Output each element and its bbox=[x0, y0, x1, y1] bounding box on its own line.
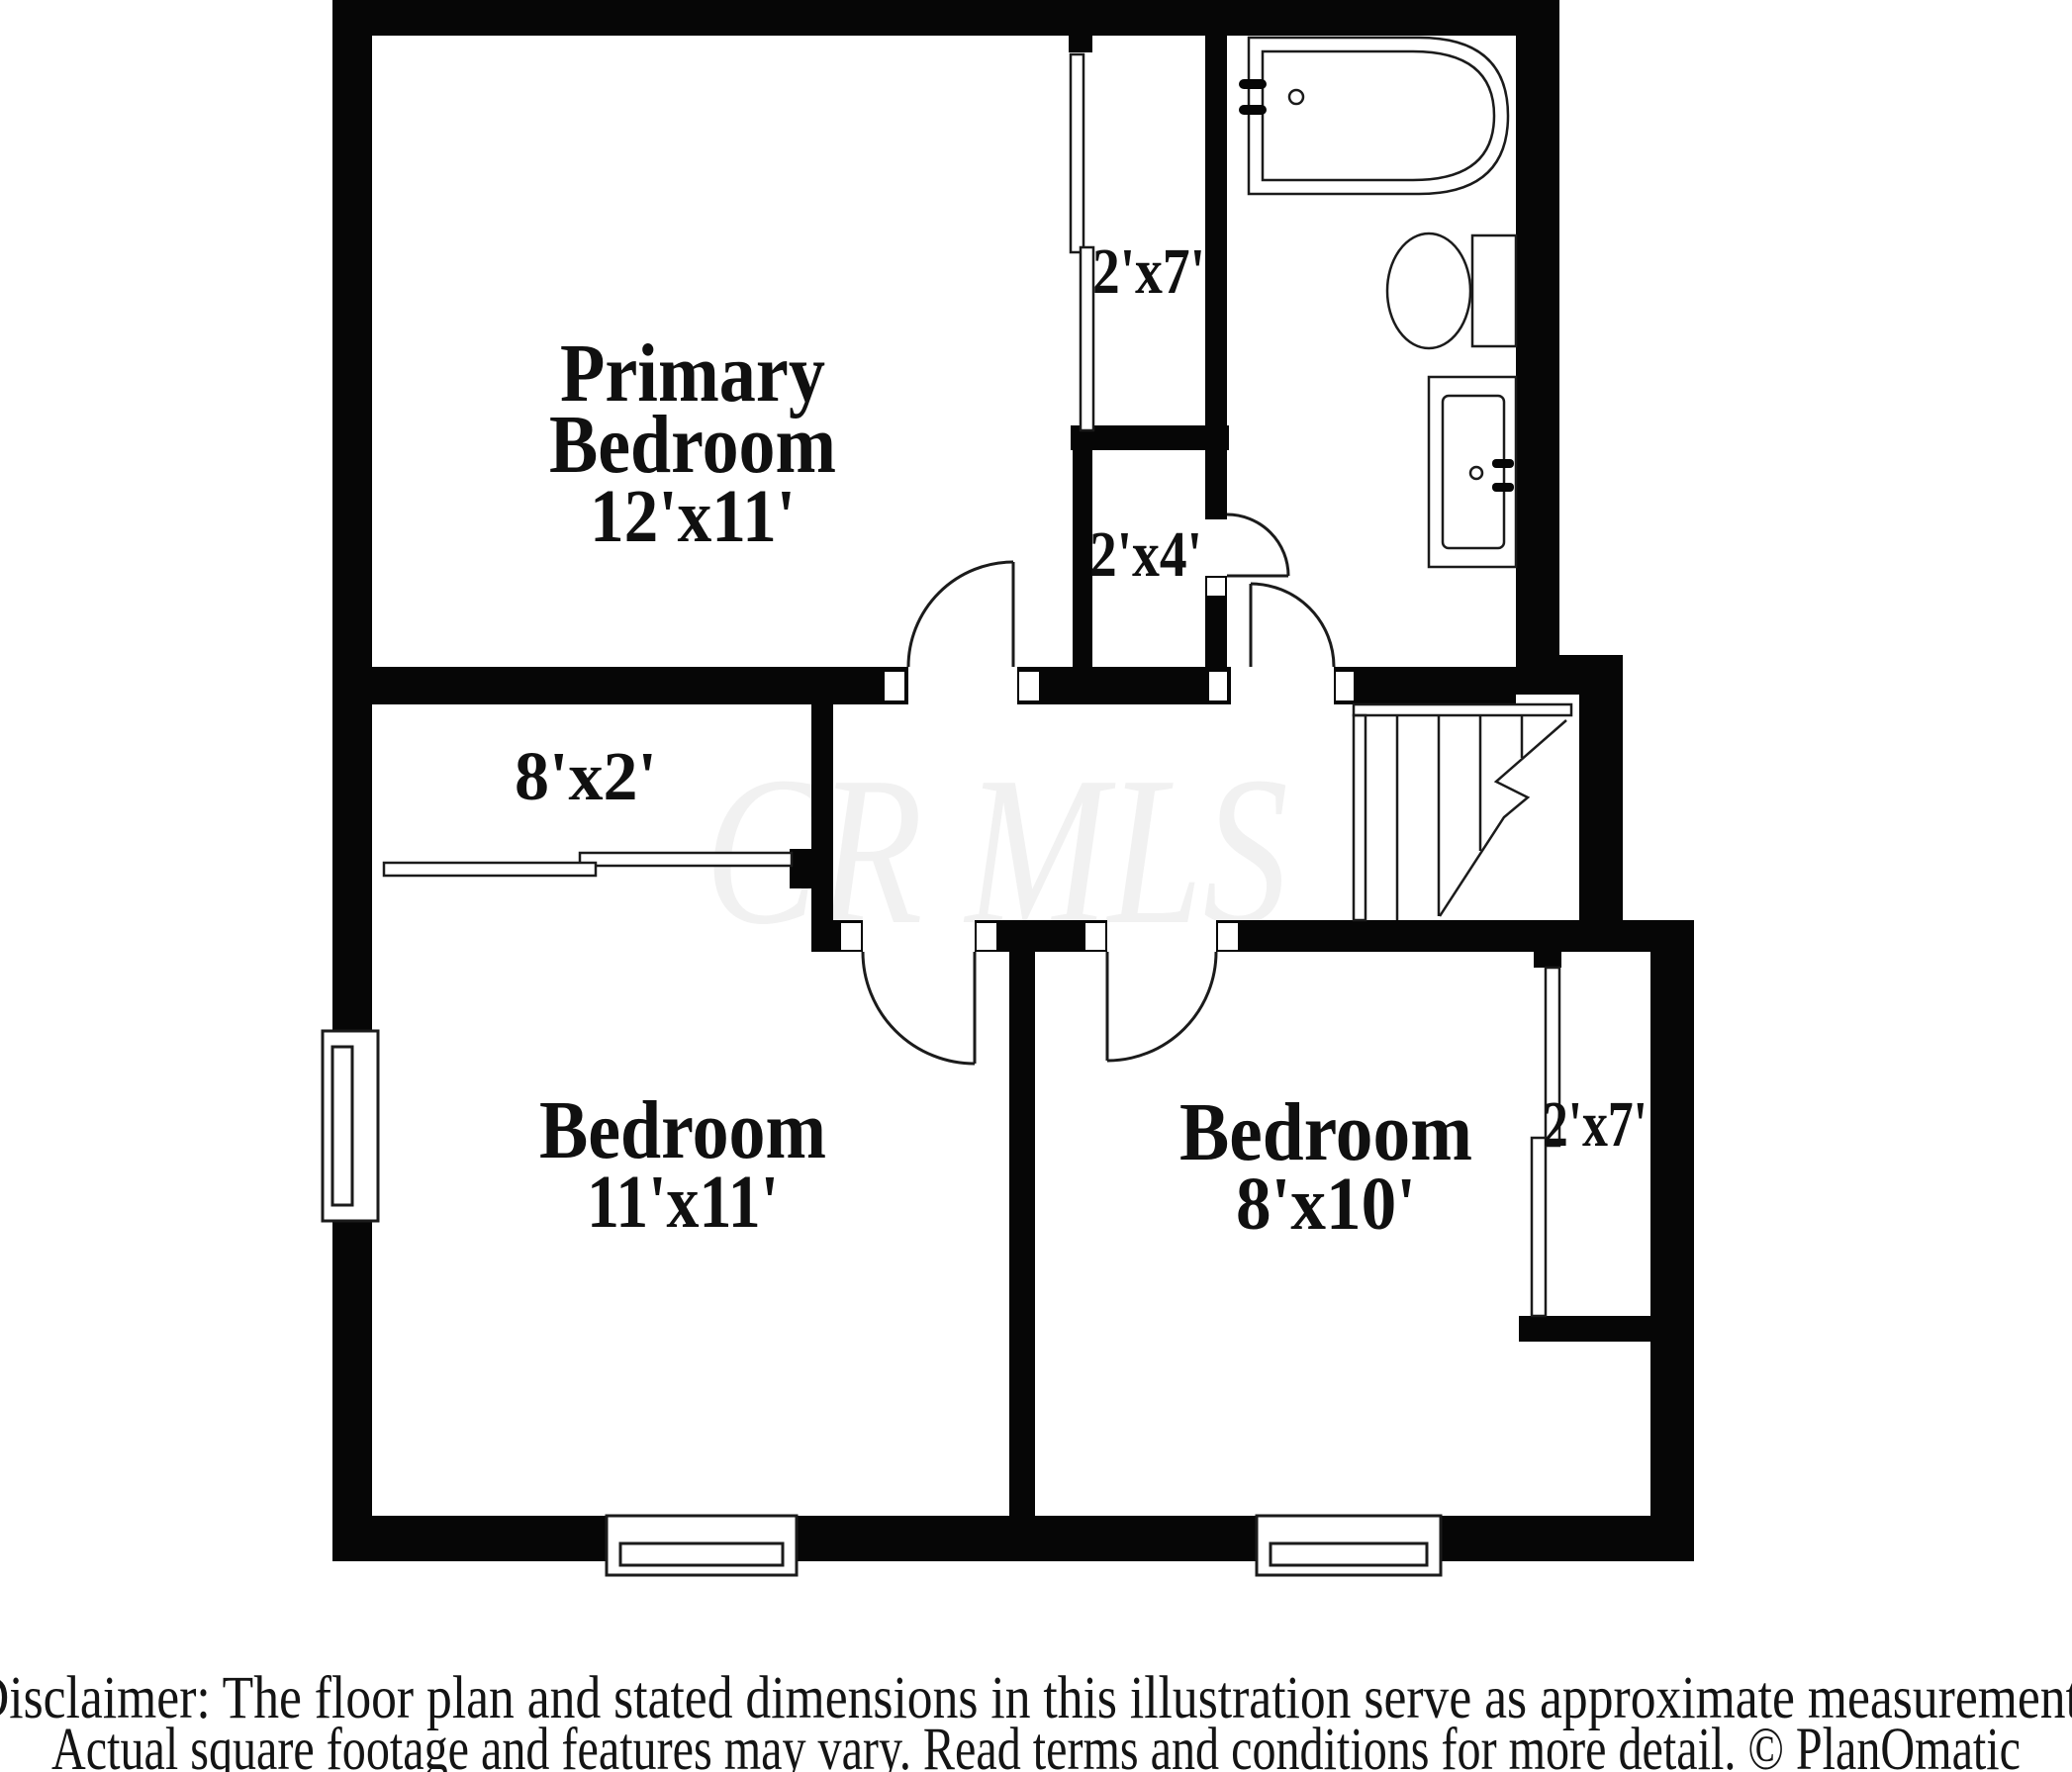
wall-segment bbox=[332, 0, 1559, 36]
wall-segment bbox=[332, 0, 372, 1561]
wall-segment bbox=[1009, 952, 1035, 1516]
jamb bbox=[1207, 578, 1225, 596]
wall-segment bbox=[1579, 655, 1623, 930]
tub-faucet-handle bbox=[1239, 105, 1267, 115]
primary-wall-closet-dimensions: 8'x2' bbox=[515, 739, 657, 815]
floor-plan-page: CR MLS bbox=[0, 0, 2072, 1772]
disclaimer-line-2: Actual square footage and features may v… bbox=[51, 1717, 2021, 1772]
room-dimensions: 8'x10' bbox=[1236, 1163, 1416, 1246]
bedroom-left-label: Bedroom 11'x11' bbox=[539, 1084, 826, 1244]
wall-segment bbox=[1519, 1316, 1650, 1342]
jamb bbox=[1218, 923, 1238, 950]
wall-segment bbox=[1017, 667, 1231, 704]
wall-segment bbox=[790, 849, 813, 888]
window-left bbox=[323, 1031, 378, 1221]
hall-closet-dimensions: 2'x4' bbox=[1089, 518, 1202, 591]
primary-bedroom-label: Primary Bedroom 12'x11' bbox=[549, 327, 836, 558]
wall-segment bbox=[1205, 36, 1227, 427]
primary-bedroom-door bbox=[908, 562, 1013, 667]
toilet bbox=[1387, 233, 1516, 348]
tub-drain bbox=[1289, 90, 1303, 104]
jamb bbox=[977, 923, 996, 950]
window-bottom-right bbox=[1257, 1516, 1441, 1575]
primary-closet-dimensions: 2'x7' bbox=[1092, 235, 1205, 308]
room-dimensions: 12'x11' bbox=[590, 475, 796, 558]
jamb bbox=[1085, 923, 1105, 950]
sink-faucet-handle bbox=[1492, 459, 1514, 468]
wall-segment bbox=[372, 667, 908, 704]
sink-drain bbox=[1470, 467, 1482, 479]
wall-segment bbox=[332, 1516, 1694, 1561]
room-dimensions: 11'x11' bbox=[587, 1161, 779, 1244]
disclaimer: Disclaimer: The floor plan and stated di… bbox=[0, 1665, 2072, 1772]
floor-plan-drawing: CR MLS bbox=[0, 0, 2072, 1772]
wall-segment bbox=[1650, 920, 1694, 1561]
wall-segment bbox=[1334, 667, 1516, 704]
toilet-bowl bbox=[1387, 233, 1470, 348]
staircase bbox=[1354, 704, 1571, 920]
jamb bbox=[885, 672, 904, 700]
jamb bbox=[1209, 672, 1227, 700]
hall-closet-door bbox=[1227, 514, 1288, 576]
wall-segment bbox=[1069, 36, 1092, 52]
wall-segment bbox=[1534, 952, 1561, 968]
sink-faucet-handle bbox=[1492, 483, 1514, 492]
stairs-landing-edge bbox=[1354, 704, 1571, 715]
wall-segment bbox=[1216, 920, 1623, 952]
stairs-rail bbox=[1354, 715, 1366, 920]
wall-segment bbox=[1516, 0, 1559, 695]
sink-vanity bbox=[1429, 377, 1516, 567]
stairs-break-line bbox=[1440, 720, 1566, 916]
jamb bbox=[1019, 672, 1039, 700]
primary-closet-sliding-door bbox=[1071, 54, 1093, 430]
wall-segment bbox=[811, 704, 833, 952]
bathroom-door bbox=[1251, 584, 1334, 667]
jamb bbox=[1336, 672, 1354, 700]
bathroom-fixtures bbox=[1239, 38, 1516, 567]
jamb bbox=[841, 923, 861, 950]
bedroom-right-closet-dimensions: 2'x7' bbox=[1543, 1088, 1648, 1161]
window-bottom-left bbox=[607, 1516, 797, 1575]
tub-faucet-handle bbox=[1239, 79, 1267, 89]
bedroom-right-label: Bedroom 8'x10' bbox=[1179, 1086, 1472, 1246]
toilet-tank bbox=[1472, 235, 1516, 346]
bathtub bbox=[1239, 38, 1508, 194]
wall-segment bbox=[1205, 450, 1227, 519]
